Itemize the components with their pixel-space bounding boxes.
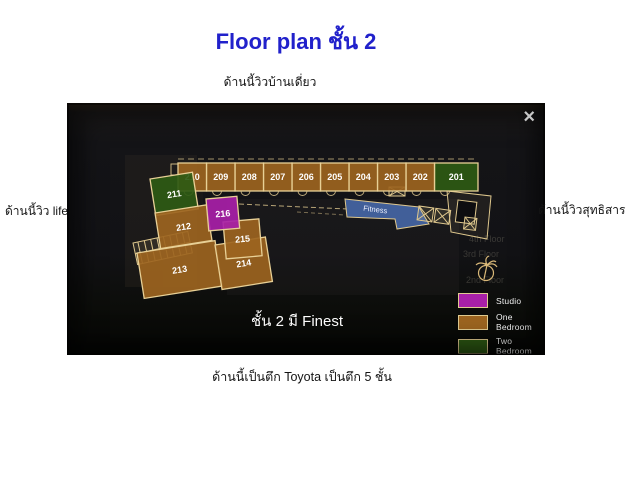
svg-text:204: 204 bbox=[356, 172, 371, 182]
svg-text:203: 203 bbox=[384, 172, 399, 182]
room-216: 216 bbox=[206, 196, 240, 231]
caption-left: ด้านนี้วิว life bbox=[5, 202, 68, 221]
caption-bottom: ด้านนี้เป็นตึก Toyota เป็นตึก 5 ชั้น bbox=[102, 367, 502, 387]
svg-text:207: 207 bbox=[270, 172, 285, 182]
legend: StudioOne BedroomTwo Bedroom bbox=[458, 293, 545, 355]
room-204: 204 bbox=[349, 163, 378, 196]
legend-label: Studio bbox=[496, 296, 521, 306]
room-209: 209 bbox=[207, 163, 236, 196]
svg-text:202: 202 bbox=[413, 172, 428, 182]
palm-tree-icon bbox=[476, 256, 497, 281]
page: Floor plan ชั้น 2 ด้านนี้วิวบ้านเดี่ยว ด… bbox=[0, 0, 640, 480]
legend-swatch bbox=[458, 293, 488, 308]
room-205: 205 bbox=[321, 163, 350, 196]
legend-label: One Bedroom bbox=[496, 312, 545, 332]
svg-text:205: 205 bbox=[327, 172, 342, 182]
svg-text:206: 206 bbox=[299, 172, 314, 182]
room-208: 208 bbox=[235, 163, 264, 196]
legend-item-studio: Studio bbox=[458, 293, 545, 308]
fitness-area bbox=[345, 199, 429, 229]
room-202: 202 bbox=[406, 163, 435, 196]
room-207: 207 bbox=[264, 163, 293, 196]
svg-text:216: 216 bbox=[215, 208, 231, 219]
room-203: 203 bbox=[378, 163, 407, 196]
svg-text:208: 208 bbox=[242, 172, 257, 182]
svg-text:215: 215 bbox=[235, 233, 251, 244]
close-icon[interactable]: × bbox=[523, 107, 535, 127]
overlay-note: ชั้น 2 มี Finest bbox=[217, 309, 377, 333]
svg-text:209: 209 bbox=[213, 172, 228, 182]
legend-item-two_bedroom: Two Bedroom bbox=[458, 336, 545, 355]
legend-swatch bbox=[458, 339, 488, 354]
lobby-core bbox=[447, 191, 491, 239]
room-201: 201 bbox=[435, 163, 479, 196]
room-206: 206 bbox=[292, 163, 321, 196]
legend-item-one_bedroom: One Bedroom bbox=[458, 312, 545, 332]
page-title: Floor plan ชั้น 2 bbox=[96, 24, 496, 59]
legend-swatch bbox=[458, 315, 488, 330]
rooms-layer: 2012022032042052062072082092102112122132… bbox=[137, 163, 478, 298]
floorplan-lightbox-image: 4th Floor3rd Floor2nd Floor Fitness bbox=[67, 103, 545, 355]
caption-top: ด้านนี้วิวบ้านเดี่ยว bbox=[70, 73, 470, 92]
svg-text:201: 201 bbox=[449, 172, 464, 182]
legend-label: Two Bedroom bbox=[496, 336, 545, 355]
caption-right: ด้านนี้วิวสุทธิสาร bbox=[538, 201, 625, 220]
